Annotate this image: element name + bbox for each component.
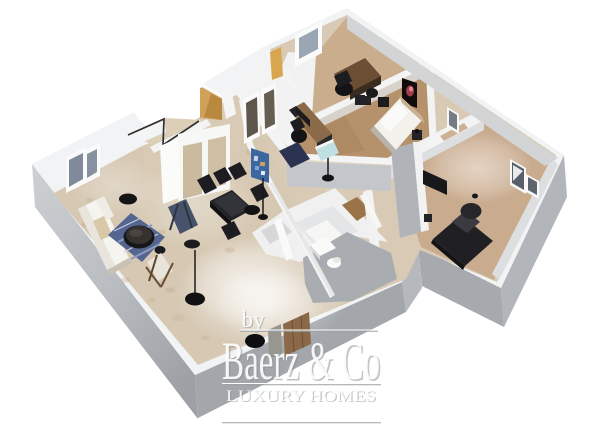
svg-text:LUXURY HOMES: LUXURY HOMES — [226, 388, 376, 405]
svg-text:by: by — [242, 307, 266, 332]
svg-text:Baerz & Co: Baerz & Co — [222, 331, 380, 391]
